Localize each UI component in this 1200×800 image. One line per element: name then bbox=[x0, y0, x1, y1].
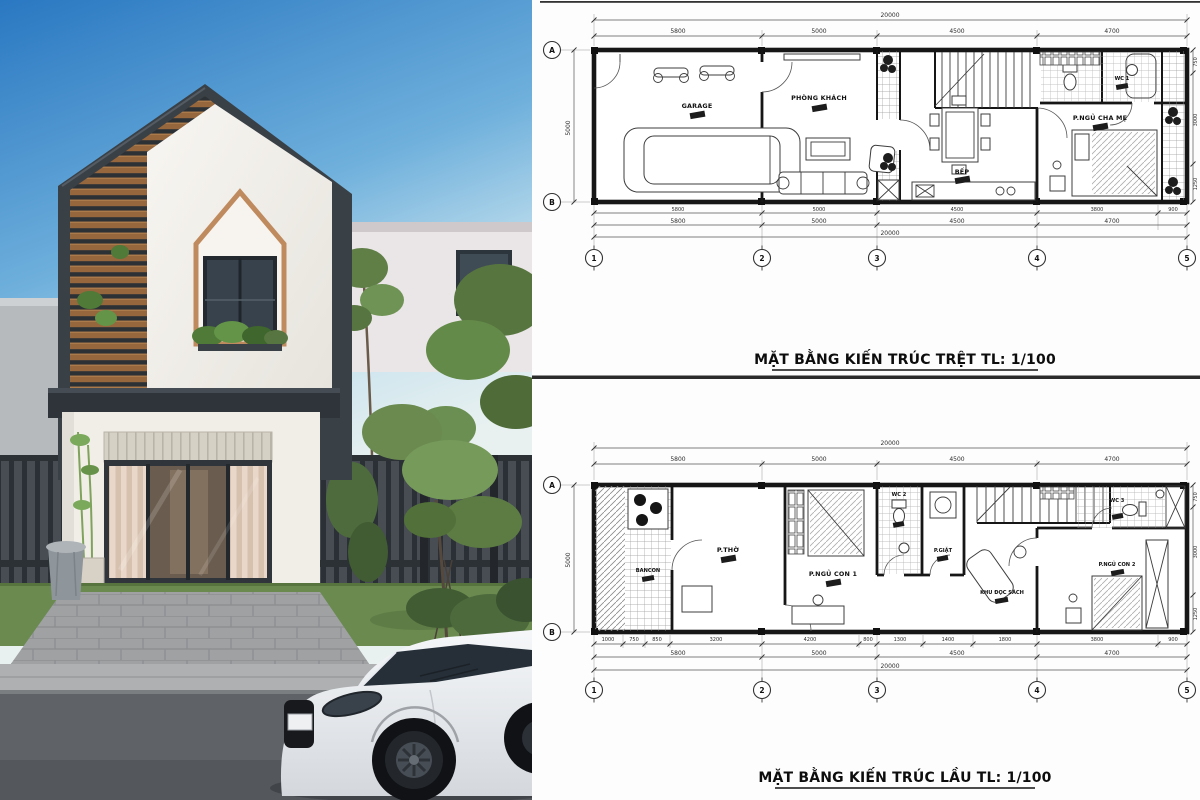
dim-total-bottom: 20000 bbox=[880, 230, 899, 237]
grid-bubble-3: 3 bbox=[874, 686, 879, 695]
dim-label: 5800 bbox=[672, 207, 685, 213]
room-label-living: PHÒNG KHÁCH bbox=[791, 93, 847, 102]
room-label-wc1: WC 1 bbox=[1115, 76, 1130, 82]
grid-bubble-2: 2 bbox=[759, 686, 764, 695]
dim-label: 1400 bbox=[942, 637, 955, 643]
grid-bubble-A: A bbox=[549, 46, 555, 55]
dim-label: 5800 bbox=[670, 28, 685, 35]
dim-label: 4200 bbox=[804, 637, 817, 643]
sheet-border-top bbox=[540, 1, 1200, 3]
room-label-master-bedroom: P.NGỦ CHA MẸ bbox=[1073, 112, 1127, 122]
dim-label: 900 bbox=[1168, 207, 1178, 213]
room-label-garage: GARAGE bbox=[682, 102, 713, 110]
dims-right: 750 3000 1250 bbox=[1191, 48, 1200, 205]
grid-bubble-1: 1 bbox=[591, 254, 596, 263]
house-ground-floor bbox=[48, 388, 340, 597]
dim-label: 5000 bbox=[811, 456, 826, 463]
dim-label: 4500 bbox=[949, 650, 964, 657]
grid-bubbles-rows: A B 5000 bbox=[544, 42, 591, 211]
dim-label: 750 bbox=[1193, 492, 1199, 502]
dim-label: 4700 bbox=[1104, 28, 1119, 35]
grid-bubbles-cols: 1 2 3 4 5 bbox=[586, 678, 1196, 703]
dim-label: 3800 bbox=[1091, 207, 1104, 213]
grid-bubble-A: A bbox=[549, 481, 555, 490]
dim-label: 3000 bbox=[1193, 546, 1199, 559]
dim-label: 750 bbox=[1193, 57, 1199, 67]
dim-total-top: 20000 bbox=[880, 12, 899, 19]
render-scene bbox=[0, 0, 532, 800]
dim-total-top: 20000 bbox=[880, 440, 899, 447]
dim-label: 750 bbox=[629, 637, 639, 643]
dim-label: 5000 bbox=[811, 218, 826, 225]
dim-label: 4500 bbox=[949, 28, 964, 35]
room-label-balcony: BANCON bbox=[636, 568, 660, 574]
room-label-reading: KHU ĐỌC SÁCH bbox=[980, 589, 1024, 596]
dim-label: 1250 bbox=[1193, 608, 1199, 621]
dim-label: 850 bbox=[652, 637, 662, 643]
dim-label: 1300 bbox=[894, 637, 907, 643]
dim-label: 3800 bbox=[1091, 637, 1104, 643]
grid-bubble-B: B bbox=[549, 628, 555, 637]
dim-label: 5800 bbox=[670, 650, 685, 657]
grid-bubble-5: 5 bbox=[1184, 686, 1189, 695]
room-label-wc3: WC 3 bbox=[1110, 498, 1125, 504]
dim-label: 5000 bbox=[811, 28, 826, 35]
ground-plan-title: MẶT BẰNG KIẾN TRÚC TRỆT TL: 1/100 bbox=[754, 349, 1056, 368]
license-plate bbox=[288, 714, 312, 730]
room-label-laundry: P.GIẶT bbox=[934, 547, 953, 554]
room-label-bedroom1: P.NGỦ CON 1 bbox=[809, 568, 857, 578]
dims-top: 20000 5800 5000 4500 4700 bbox=[592, 440, 1190, 480]
dim-label: 1000 bbox=[602, 637, 615, 643]
ground-floor-plan: 20000 5800 5000 4500 4700 bbox=[532, 0, 1200, 380]
dim-label: 5000 bbox=[813, 207, 826, 213]
dim-label: 4500 bbox=[951, 207, 964, 213]
screenshot-root: 20000 5800 5000 4500 4700 bbox=[0, 0, 1200, 800]
dim-total-bottom: 20000 bbox=[880, 663, 899, 670]
room-label-wc2: WC 2 bbox=[892, 492, 907, 498]
grid-bubble-1: 1 bbox=[591, 686, 596, 695]
dim-label: 4700 bbox=[1104, 650, 1119, 657]
dim-label: 900 bbox=[1168, 637, 1178, 643]
house-render-photo bbox=[0, 0, 532, 800]
room-label-bedroom2: P.NGỦ CON 2 bbox=[1099, 560, 1136, 568]
room-label-worship: P.THỜ bbox=[717, 545, 739, 554]
grid-bubbles-cols: 1 2 3 4 5 bbox=[586, 246, 1196, 271]
floor-plans-sheet: 20000 5800 5000 4500 4700 bbox=[532, 0, 1200, 800]
dims-right: 750 3000 1250 bbox=[1191, 483, 1200, 635]
upper-plan-title: MẶT BẰNG KIẾN TRÚC LẦU TL: 1/100 bbox=[758, 767, 1051, 786]
plan-body: GARAGE PHÒNG KHÁCH bbox=[591, 47, 1187, 205]
dim-label: 4500 bbox=[949, 218, 964, 225]
grid-bubble-5: 5 bbox=[1184, 254, 1189, 263]
upper-floor-plan: 20000 5800 5000 4500 4700 BANCON bbox=[532, 380, 1200, 800]
dim-label: 3000 bbox=[1193, 114, 1199, 127]
dim-label: 4500 bbox=[949, 456, 964, 463]
car-front-wheel bbox=[372, 718, 456, 800]
driveway bbox=[8, 592, 372, 668]
dim-label: 5000 bbox=[811, 650, 826, 657]
trash-bin bbox=[46, 541, 86, 600]
dim-label: 1250 bbox=[1193, 178, 1199, 191]
dim-label: 4700 bbox=[1104, 456, 1119, 463]
dims-bottom: 5800 5000 4500 3800 900 5800 5000 4500 4… bbox=[592, 205, 1190, 246]
grid-bubbles-rows: A B 5000 bbox=[544, 477, 591, 641]
grid-bubble-4: 4 bbox=[1034, 686, 1039, 695]
grid-bubble-4: 4 bbox=[1034, 254, 1039, 263]
room-label-kitchen: BẾP bbox=[955, 166, 970, 176]
grid-bubble-3: 3 bbox=[874, 254, 879, 263]
dim-label: 5800 bbox=[670, 456, 685, 463]
grid-bubble-2: 2 bbox=[759, 254, 764, 263]
roller-shutter bbox=[104, 432, 272, 462]
dim-label: 5800 bbox=[670, 218, 685, 225]
dim-label: 3200 bbox=[710, 637, 723, 643]
dims-bottom: 1000 750 850 3200 4200 800 1300 1400 180… bbox=[592, 635, 1190, 678]
dim-label: 1800 bbox=[999, 637, 1012, 643]
dim-label: 4700 bbox=[1104, 218, 1119, 225]
dim-label: 800 bbox=[863, 637, 873, 643]
glass-door bbox=[104, 460, 272, 584]
dims-top: 20000 5800 5000 4500 4700 bbox=[592, 12, 1190, 46]
dim-left: 5000 bbox=[565, 552, 572, 567]
dim-left: 5000 bbox=[565, 120, 572, 135]
grid-bubble-B: B bbox=[549, 198, 555, 207]
panel-divider bbox=[532, 376, 1200, 380]
plan-body: BANCON P.THỜ P.NGỦ CON 1 bbox=[591, 482, 1187, 635]
